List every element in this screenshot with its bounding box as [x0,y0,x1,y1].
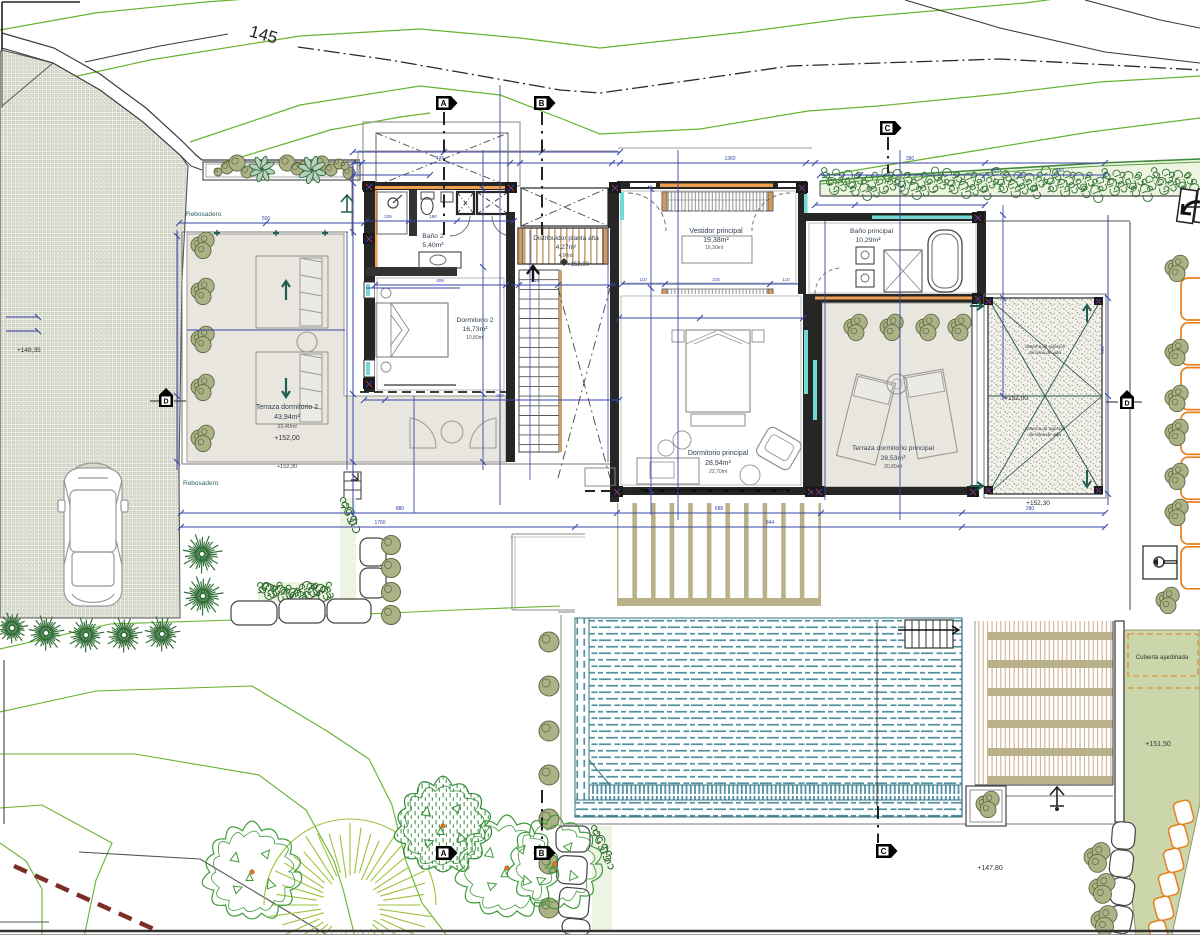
svg-text:110: 110 [639,277,647,282]
svg-text:Sistema de sujeción: Sistema de sujeción [1025,426,1066,431]
svg-text:Terraza dormitorio 2: Terraza dormitorio 2 [256,404,318,411]
svg-text:de línea de vida: de línea de vida [1029,432,1061,437]
svg-text:115: 115 [533,278,540,283]
svg-text:B: B [539,849,545,858]
svg-text:215: 215 [712,277,720,282]
svg-text:330: 330 [1100,346,1105,354]
svg-text:Cubierta ajardinada: Cubierta ajardinada [1136,655,1189,661]
svg-text:1360: 1360 [724,156,735,162]
svg-text:D: D [1124,401,1129,408]
svg-text:4,27m²: 4,27m² [556,244,577,251]
svg-text:Vestidor principal: Vestidor principal [689,228,743,235]
svg-text:4,00ml: 4,00ml [558,253,573,259]
svg-text:C: C [885,124,891,133]
svg-text:+148,35: +148,35 [17,347,41,354]
svg-text:110: 110 [782,277,790,282]
svg-text:A: A [441,849,447,858]
svg-text:+151,50: +151,50 [1145,741,1171,748]
svg-text:360: 360 [496,393,504,398]
svg-text:+147,80: +147,80 [977,865,1003,872]
svg-text:Rebosadero: Rebosadero [183,480,219,487]
svg-text:de línea de vida: de línea de vida [1029,350,1061,355]
svg-text:360: 360 [1056,168,1065,174]
svg-text:D: D [163,399,168,406]
svg-text:10,29m²: 10,29m² [856,237,882,244]
svg-text:Dormitorio principal: Dormitorio principal [688,450,749,457]
svg-text:225: 225 [384,214,392,219]
svg-text:19,38m²: 19,38m² [703,237,729,244]
svg-text:16,30ml: 16,30ml [705,245,723,251]
svg-text:405: 405 [991,168,1000,174]
svg-text:Baño 2: Baño 2 [422,233,444,240]
svg-text:16,73m²: 16,73m² [463,326,489,333]
svg-text:280: 280 [1026,506,1035,512]
svg-text:880: 880 [396,506,405,512]
svg-text:A: A [441,99,447,108]
svg-text:Sistema de sujeción: Sistema de sujeción [1025,344,1066,349]
svg-text:28,53m²: 28,53m² [881,455,907,462]
svg-text:1760: 1760 [374,520,385,526]
svg-text:28,94m²: 28,94m² [705,460,731,467]
svg-text:190: 190 [429,214,437,219]
svg-text:33,40ml: 33,40ml [277,424,297,430]
svg-text:43,94m²: 43,94m² [274,414,300,421]
svg-text:408: 408 [436,278,444,283]
svg-text:C: C [881,847,887,856]
svg-text:Rebosadero: Rebosadero [186,211,222,218]
svg-text:844: 844 [766,520,775,526]
svg-text:500: 500 [262,216,271,222]
svg-text:+152,00: +152,00 [567,262,590,268]
svg-text:+152,30: +152,30 [277,464,297,470]
svg-text:688: 688 [715,506,724,512]
svg-text:Distribuidor planta alta: Distribuidor planta alta [533,235,599,242]
svg-text:Baño principal: Baño principal [850,228,894,235]
svg-text:Terraza dormitorio principal: Terraza dormitorio principal [852,445,934,452]
svg-text:20,80ml: 20,80ml [884,464,902,470]
svg-text:380: 380 [906,156,915,162]
svg-text:+152,00: +152,00 [1004,395,1028,402]
svg-text:5,40m²: 5,40m² [422,242,444,249]
svg-text:10,80ml: 10,80ml [466,335,484,341]
svg-text:22,70ml: 22,70ml [709,469,727,475]
svg-text:B: B [539,99,545,108]
svg-text:Dormitorio 2: Dormitorio 2 [456,317,493,324]
svg-text:+152,00: +152,00 [274,435,300,442]
